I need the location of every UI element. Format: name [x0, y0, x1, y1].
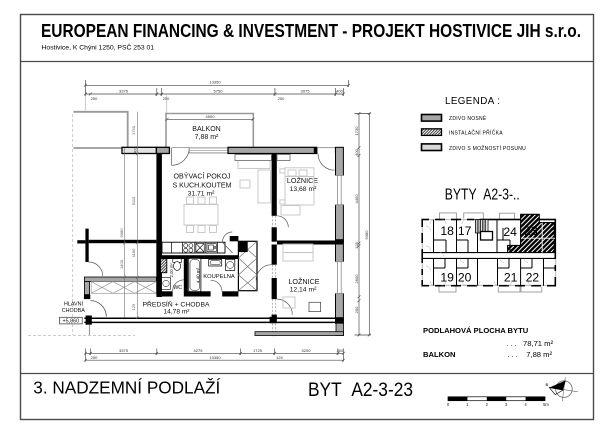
svg-text:1180: 1180 — [131, 248, 136, 257]
svg-text:250: 250 — [91, 96, 98, 101]
svg-text:9080: 9080 — [119, 228, 124, 238]
svg-text:125: 125 — [276, 355, 283, 360]
svg-text:BYT A2-3-23: BYT A2-3-23 — [308, 379, 413, 401]
svg-text:400: 400 — [354, 148, 359, 155]
svg-text:4500: 4500 — [206, 114, 216, 119]
svg-text:23: 23 — [524, 224, 538, 238]
svg-text:13350: 13350 — [209, 80, 221, 85]
svg-text:EUROPEAN FINANCING & INVESTMEN: EUROPEAN FINANCING & INVESTMENT - PROJEK… — [41, 21, 581, 41]
svg-text:18: 18 — [440, 224, 454, 238]
svg-text:13350: 13350 — [209, 355, 221, 360]
svg-text:CHODBA: CHODBA — [62, 308, 85, 314]
svg-text:ZDIVO NOSNÉ: ZDIVO NOSNÉ — [449, 115, 487, 122]
svg-text:5m: 5m — [543, 402, 549, 407]
svg-text:250: 250 — [163, 96, 170, 101]
svg-text:PŘEDSÍŇ + CHODBA: PŘEDSÍŇ + CHODBA — [142, 300, 210, 309]
svg-text:PODLAHOVÁ PLOCHA BYTU: PODLAHOVÁ PLOCHA BYTU — [423, 326, 529, 335]
svg-text:KOUPELNA: KOUPELNA — [203, 274, 235, 280]
svg-text:20: 20 — [458, 271, 472, 285]
svg-text:LOŽNICE: LOŽNICE — [288, 277, 319, 286]
svg-text:3075: 3075 — [301, 88, 311, 93]
svg-text:24: 24 — [503, 225, 517, 239]
svg-text:400: 400 — [133, 147, 137, 153]
svg-text:1725: 1725 — [253, 348, 263, 353]
svg-text:BYTY A2-3-..: BYTY A2-3-.. — [445, 187, 520, 204]
svg-text:3375: 3375 — [119, 88, 129, 93]
svg-text:+5,860: +5,860 — [62, 319, 79, 325]
svg-text:1750: 1750 — [131, 125, 136, 135]
svg-text:BALKON: BALKON — [192, 126, 220, 133]
svg-text:3375: 3375 — [119, 348, 129, 353]
svg-text:400: 400 — [336, 88, 343, 93]
svg-text:200: 200 — [354, 306, 359, 313]
svg-text:OBÝVACÍ POKOJ: OBÝVACÍ POKOJ — [173, 171, 230, 180]
svg-text:2600: 2600 — [354, 274, 359, 284]
svg-text:. . . 7,88 m²: . . . 7,88 m² — [507, 350, 552, 359]
svg-text:400: 400 — [337, 348, 344, 353]
svg-text:1400: 1400 — [119, 259, 124, 269]
svg-text:ZDIVO S MOŽNOSTÍ POSUNU: ZDIVO S MOŽNOSTÍ POSUNU — [449, 144, 526, 152]
svg-text:3200: 3200 — [302, 348, 312, 353]
svg-text:13,68 m²: 13,68 m² — [290, 186, 318, 193]
svg-text:22: 22 — [526, 271, 540, 285]
svg-text:125: 125 — [131, 303, 136, 310]
svg-text:19: 19 — [440, 271, 454, 285]
svg-text:HLAVNÍ: HLAVNÍ — [64, 301, 84, 308]
svg-text:125: 125 — [354, 241, 359, 248]
svg-text:7,88 m²: 7,88 m² — [195, 134, 219, 141]
svg-text:5115: 5115 — [131, 196, 136, 205]
svg-text:BALKON: BALKON — [423, 350, 455, 359]
svg-text:250: 250 — [91, 355, 98, 360]
svg-text:21: 21 — [504, 271, 518, 285]
svg-text:4450: 4450 — [354, 194, 359, 204]
svg-text:1730: 1730 — [354, 126, 359, 136]
svg-text:4275: 4275 — [194, 348, 204, 353]
svg-text:S KUCH.KOUTEM: S KUCH.KOUTEM — [172, 181, 231, 189]
svg-text:WC: WC — [173, 285, 182, 291]
svg-text:12,14 m²: 12,14 m² — [290, 287, 318, 294]
svg-text:3. NADZEMNÍ PODLAŽÍ: 3. NADZEMNÍ PODLAŽÍ — [33, 377, 220, 397]
svg-text:5750: 5750 — [214, 88, 224, 93]
svg-text:9380: 9380 — [364, 230, 369, 240]
svg-text:17: 17 — [458, 224, 472, 238]
svg-text:. . . 78,71 m²: . . . 78,71 m² — [506, 339, 553, 348]
svg-text:2,00 m²: 2,00 m² — [169, 263, 174, 278]
svg-text:250: 250 — [278, 96, 285, 101]
svg-text:Hostivice, K Chýni 1250, PSČ 2: Hostivice, K Chýni 1250, PSČ 253 01 — [42, 43, 155, 52]
svg-text:14,78 m²: 14,78 m² — [163, 308, 190, 315]
svg-text:LEGENDA :: LEGENDA : — [445, 96, 500, 107]
svg-text:4,40 m²: 4,40 m² — [195, 267, 200, 283]
svg-text:INSTALAČNÍ PŘÍČKA: INSTALAČNÍ PŘÍČKA — [449, 129, 503, 137]
